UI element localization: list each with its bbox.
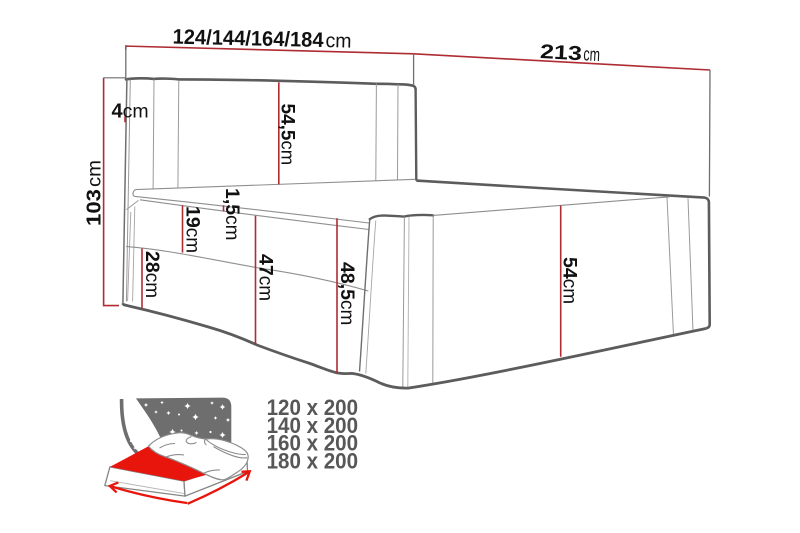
svg-text:103: 103 <box>83 189 106 226</box>
svg-text:19cm: 19cm <box>182 206 204 253</box>
svg-text:1,5cm: 1,5cm <box>221 188 243 240</box>
svg-text:47cm: 47cm <box>255 254 277 301</box>
svg-text:cm: cm <box>84 160 106 187</box>
svg-text:cm: cm <box>325 30 351 53</box>
svg-text:180 x 200: 180 x 200 <box>267 449 358 474</box>
svg-text:213: 213 <box>539 41 582 65</box>
svg-text:4cm: 4cm <box>112 101 149 123</box>
svg-text:54,5cm: 54,5cm <box>277 104 299 166</box>
svg-text:48,5cm: 48,5cm <box>336 262 358 325</box>
svg-text:cm: cm <box>583 44 601 66</box>
svg-text:28cm: 28cm <box>141 251 163 298</box>
svg-text:124/144/164/184: 124/144/164/184 <box>172 26 324 52</box>
svg-text:54cm: 54cm <box>559 257 581 304</box>
